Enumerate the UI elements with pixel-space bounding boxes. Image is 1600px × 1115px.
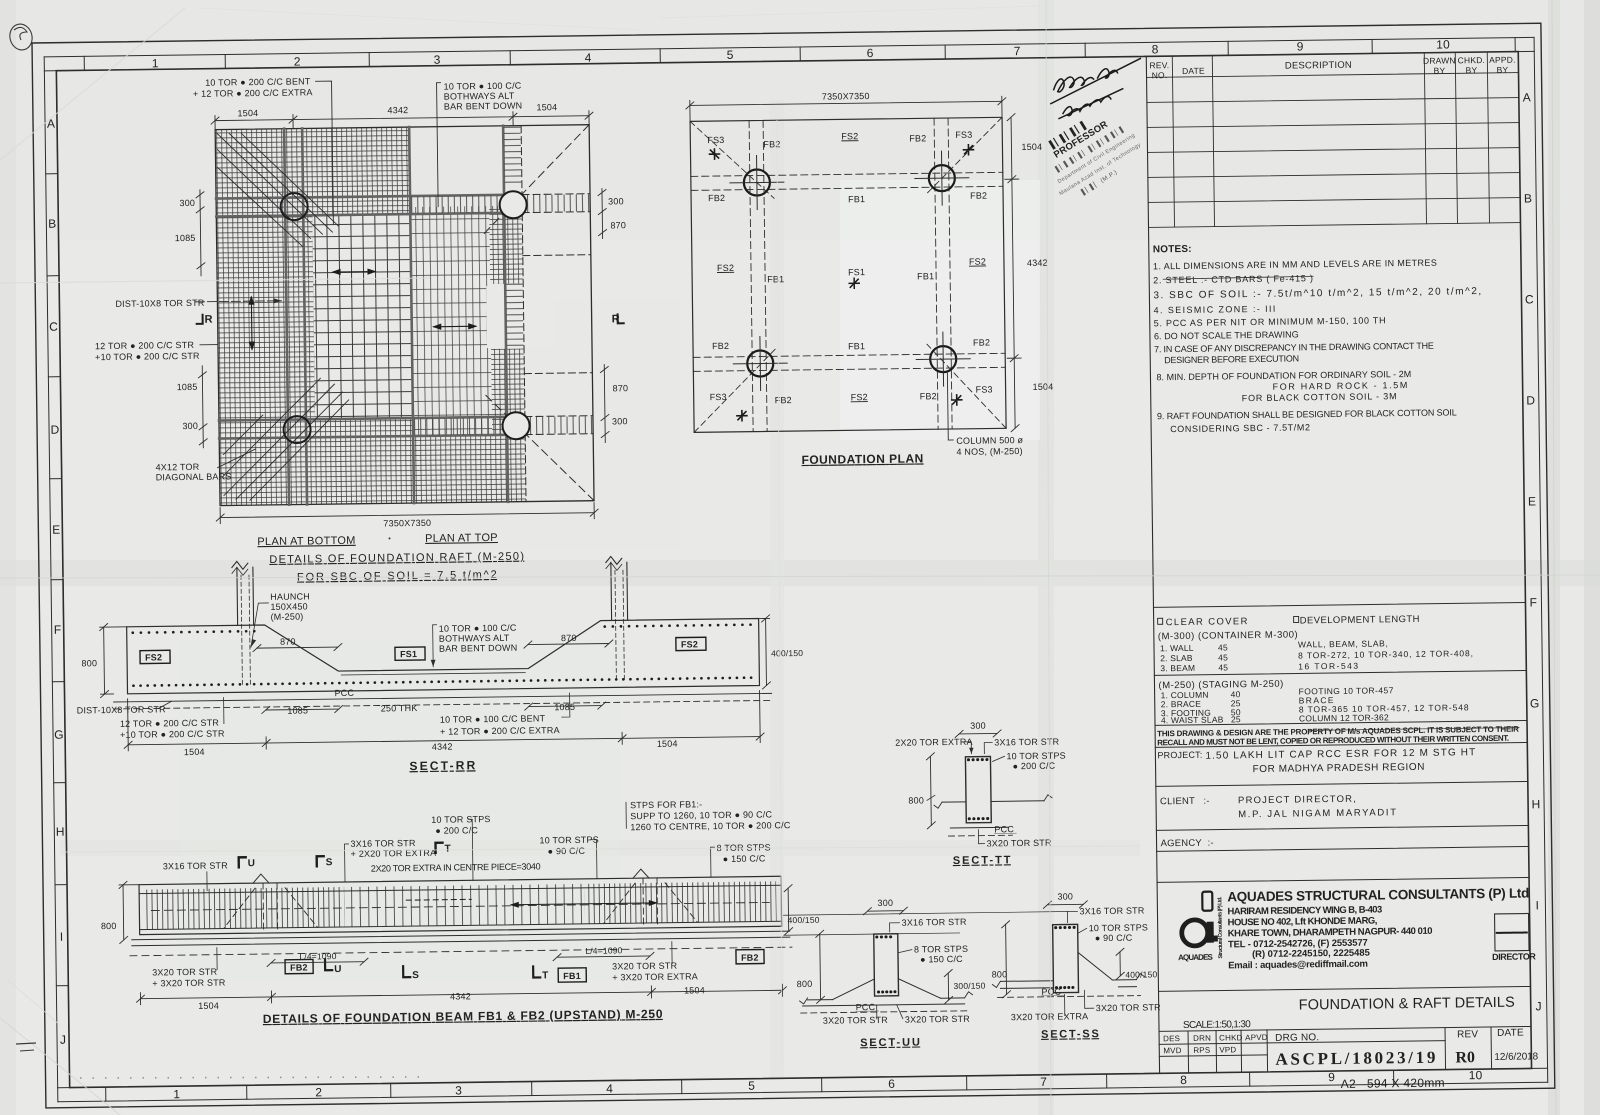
svg-text:4 NOS, (M-250): 4 NOS, (M-250)	[956, 446, 1022, 457]
svg-text:10 TOR STPS: 10 TOR STPS	[1006, 751, 1066, 762]
svg-text:300/150: 300/150	[953, 981, 985, 991]
svg-text:3. BEAM: 3. BEAM	[1160, 663, 1195, 673]
svg-text:4342: 4342	[387, 105, 408, 115]
svg-text:150X450: 150X450	[270, 601, 308, 611]
svg-text:SCALE:1:50,1:30: SCALE:1:50,1:30	[1183, 1019, 1251, 1031]
svg-text:PCC: PCC	[856, 1002, 876, 1012]
svg-text:BY: BY	[1466, 65, 1478, 75]
svg-text:1085: 1085	[287, 705, 308, 715]
svg-text:FB1: FB1	[563, 971, 581, 981]
svg-text:10 TOR STPS: 10 TOR STPS	[431, 814, 491, 825]
svg-text:CLIENT :-: CLIENT :-	[1160, 796, 1210, 808]
svg-text:FS1: FS1	[848, 267, 865, 277]
svg-text:1260 TO CENTRE, 10 TOR ● 200: 1260 TO CENTRE, 10 TOR ● 200 C/C	[630, 820, 791, 832]
svg-text:3X20 TOR EXTRA: 3X20 TOR EXTRA	[1011, 1011, 1089, 1022]
svg-text:300: 300	[179, 198, 195, 208]
svg-text:FS2: FS2	[841, 131, 858, 141]
svg-text:CONSIDERING SBC - 7.5T/M2: CONSIDERING SBC - 7.5T/M2	[1170, 422, 1310, 434]
svg-text:E: E	[52, 523, 60, 537]
svg-text:FB2: FB2	[775, 395, 792, 405]
svg-text:SUPP TO 1260, 10 TOR ● 90 C/C: SUPP TO 1260, 10 TOR ● 90 C/C	[630, 809, 772, 821]
svg-text:7: 7	[1014, 44, 1021, 58]
svg-text:(M-300) (CONTAINER M-300): (M-300) (CONTAINER M-300)	[1158, 629, 1298, 642]
svg-text:FB2: FB2	[290, 962, 308, 972]
svg-text:10: 10	[1436, 37, 1450, 51]
svg-text:T: T	[445, 844, 451, 855]
svg-text:3X20 TOR STR: 3X20 TOR STR	[823, 1015, 889, 1026]
svg-text:3X16 TOR STR: 3X16 TOR STR	[1079, 906, 1145, 917]
svg-text:300: 300	[182, 421, 198, 431]
svg-text:Email : aquades@rediffmail.com: Email : aquades@rediffmail.com	[1228, 959, 1368, 972]
svg-text:25: 25	[1231, 714, 1241, 724]
svg-text:870: 870	[610, 220, 626, 230]
svg-text:10 TOR STPS: 10 TOR STPS	[539, 835, 599, 846]
svg-text:800: 800	[992, 969, 1008, 979]
svg-text:DRG NO.: DRG NO.	[1275, 1032, 1319, 1044]
svg-text:C: C	[1525, 292, 1534, 306]
svg-text:3X20 TOR STR: 3X20 TOR STR	[612, 961, 678, 972]
svg-text:FOUNDATION PLAN: FOUNDATION PLAN	[801, 451, 923, 467]
svg-text:+ 2X20 TOR EXTRA: + 2X20 TOR EXTRA	[351, 848, 437, 859]
svg-text:DEVELOPMENT LENGTH: DEVELOPMENT LENGTH	[1300, 614, 1420, 627]
svg-text:10 TOR ● 100 C/C BENT: 10 TOR ● 100 C/C BENT	[440, 713, 546, 724]
svg-text:FS1: FS1	[400, 649, 417, 659]
svg-text:9: 9	[1297, 39, 1304, 53]
svg-text:8: 8	[1180, 1073, 1187, 1087]
svg-text:DATE: DATE	[1497, 1028, 1524, 1039]
svg-text:APPD.: APPD.	[1489, 55, 1516, 65]
svg-text:7: 7	[1040, 1075, 1047, 1089]
svg-text:250 THK: 250 THK	[381, 703, 418, 713]
svg-text:RPS: RPS	[1193, 1046, 1210, 1055]
svg-text:I: I	[1536, 898, 1540, 912]
svg-text:SECT-UU: SECT-UU	[860, 1036, 920, 1049]
svg-text:FB2: FB2	[970, 191, 987, 201]
svg-text:FS2: FS2	[851, 392, 868, 402]
svg-text:PCC: PCC	[994, 824, 1014, 834]
svg-text:FS3: FS3	[955, 130, 972, 140]
svg-text:BAR BENT DOWN: BAR BENT DOWN	[444, 101, 523, 112]
svg-text:PCC: PCC	[1041, 987, 1061, 997]
svg-text:3X16 TOR STR: 3X16 TOR STR	[994, 737, 1060, 748]
svg-text:DIST-10X8 TOR STR: DIST-10X8 TOR STR	[77, 704, 167, 715]
svg-text:U: U	[334, 964, 342, 975]
svg-text:1. WALL: 1. WALL	[1160, 643, 1194, 653]
svg-text:R0: R0	[1455, 1049, 1475, 1066]
svg-text:REV: REV	[1457, 1029, 1478, 1040]
svg-text:1504: 1504	[684, 985, 705, 995]
svg-text:FS2: FS2	[717, 263, 734, 273]
svg-text:FOUNDATION & RAFT DETAILS: FOUNDATION & RAFT DETAILS	[1299, 995, 1515, 1014]
svg-text:E: E	[1528, 494, 1536, 508]
svg-text:B: B	[1524, 191, 1532, 205]
svg-text:S: S	[326, 857, 333, 868]
svg-text:10 TOR STPS: 10 TOR STPS	[1089, 922, 1149, 933]
svg-text:3X16 TOR STR: 3X16 TOR STR	[902, 917, 968, 928]
svg-text:G: G	[1530, 696, 1540, 710]
svg-text:● 90 C/C: ● 90 C/C	[548, 846, 586, 856]
svg-text:CHKD.: CHKD.	[1458, 55, 1486, 65]
svg-text:16 TOR-543: 16 TOR-543	[1298, 661, 1358, 672]
svg-text:Structural Consultants (P) Ltd: Structural Consultants (P) Ltd.	[1217, 896, 1224, 959]
svg-text:APVD: APVD	[1245, 1033, 1268, 1042]
svg-text:FOR BLACK COTTON SOIL - 3M: FOR BLACK COTTON SOIL - 3M	[1242, 391, 1397, 403]
svg-text:J: J	[60, 1033, 66, 1047]
svg-text:10 TOR ● 200 C/C BENT: 10 TOR ● 200 C/C BENT	[205, 76, 311, 87]
svg-text:FB1: FB1	[917, 271, 934, 281]
svg-text:+ 3X20 TOR STR: + 3X20 TOR STR	[152, 978, 226, 989]
svg-text:L/4=1090: L/4=1090	[299, 951, 336, 961]
svg-text:4X12 TOR: 4X12 TOR	[156, 462, 200, 473]
svg-text:PLAN AT BOTTOM: PLAN AT BOTTOM	[257, 535, 355, 548]
svg-text:STPS FOR FB1:-: STPS FOR FB1:-	[630, 799, 702, 810]
svg-text:45: 45	[1218, 652, 1228, 662]
svg-text:2. SLAB: 2. SLAB	[1160, 653, 1193, 663]
svg-text:1085: 1085	[177, 382, 198, 392]
svg-text:● 150 C/C: ● 150 C/C	[920, 954, 963, 965]
svg-text:+ 12 TOR ● 200 C/C EXTRA: + 12 TOR ● 200 C/C EXTRA	[440, 725, 560, 737]
svg-text:9: 9	[1328, 1070, 1335, 1084]
svg-text:DRAWN: DRAWN	[1423, 55, 1456, 65]
svg-text:+ 12 TOR ● 200 C/C EXTRA: + 12 TOR ● 200 C/C EXTRA	[193, 87, 313, 99]
svg-text:COLUMN 500 ø: COLUMN 500 ø	[956, 435, 1023, 446]
svg-text:R: R	[205, 314, 213, 326]
svg-text:MVD: MVD	[1163, 1046, 1182, 1055]
svg-text:FB1: FB1	[767, 274, 784, 284]
svg-text:1085: 1085	[175, 233, 196, 243]
svg-text:8: 8	[1152, 42, 1159, 56]
svg-text:400/150: 400/150	[771, 648, 803, 658]
svg-text:3X20 TOR STR: 3X20 TOR STR	[905, 1014, 971, 1025]
svg-text:6: 6	[888, 1077, 895, 1091]
svg-text:2: 2	[315, 1085, 322, 1099]
svg-text:5: 5	[727, 48, 734, 62]
svg-text:● 90 C/C: ● 90 C/C	[1095, 933, 1133, 943]
svg-text:BY: BY	[1497, 65, 1509, 75]
svg-text:S: S	[412, 970, 419, 981]
svg-text:400/150: 400/150	[1125, 969, 1157, 979]
svg-text:FS3: FS3	[710, 392, 727, 402]
svg-text:870: 870	[280, 637, 296, 647]
svg-text:DIST-10X8 TOR STR: DIST-10X8 TOR STR	[115, 298, 205, 309]
svg-text:U: U	[248, 858, 256, 869]
svg-text:FS2: FS2	[145, 652, 162, 662]
svg-text:1: 1	[152, 56, 159, 70]
svg-text:F: F	[54, 623, 62, 637]
svg-text:FS3: FS3	[976, 384, 993, 394]
svg-text:1504: 1504	[1033, 382, 1054, 392]
svg-text:10: 10	[1469, 1068, 1483, 1082]
svg-text:6: 6	[867, 46, 874, 60]
svg-text:1504: 1504	[184, 747, 205, 757]
svg-text:800: 800	[797, 979, 813, 989]
svg-text:1504: 1504	[237, 108, 258, 118]
svg-text:PROJECT DIRECTOR,: PROJECT DIRECTOR,	[1238, 794, 1356, 807]
svg-text:DES: DES	[1163, 1034, 1180, 1043]
svg-text:FB2: FB2	[973, 337, 990, 347]
svg-text:12 TOR ● 200 C/C STR: 12 TOR ● 200 C/C STR	[120, 718, 220, 729]
svg-text:800: 800	[101, 921, 117, 931]
svg-text:NOTES:: NOTES:	[1153, 244, 1192, 256]
svg-text:1: 1	[173, 1087, 180, 1101]
svg-text:D: D	[50, 423, 59, 437]
svg-text:FS3: FS3	[707, 135, 724, 145]
svg-text:PROJECT:: PROJECT:	[1157, 750, 1202, 761]
svg-text:5: 5	[748, 1079, 755, 1093]
svg-text:G: G	[54, 728, 64, 742]
svg-text:4. WAIST SLAB: 4. WAIST SLAB	[1161, 714, 1224, 725]
svg-text:4342: 4342	[1027, 258, 1048, 268]
svg-text:A: A	[1523, 90, 1531, 104]
svg-text:FS2: FS2	[681, 639, 698, 649]
svg-text:400/150: 400/150	[787, 915, 819, 925]
svg-text:AGENCY :-: AGENCY :-	[1161, 838, 1214, 850]
svg-text:1504: 1504	[657, 739, 678, 749]
svg-text:B: B	[48, 217, 56, 231]
svg-text:1504: 1504	[536, 102, 557, 112]
svg-text:800: 800	[81, 658, 97, 668]
svg-text:4: 4	[585, 51, 592, 65]
svg-text:J: J	[1535, 999, 1541, 1013]
svg-text:1504: 1504	[198, 1001, 219, 1011]
svg-text:4342: 4342	[450, 991, 471, 1001]
svg-text:VPD: VPD	[1219, 1045, 1236, 1054]
svg-text:COLUMN 12 TOR-362: COLUMN 12 TOR-362	[1299, 712, 1389, 723]
svg-text:A2 594 X 420mm: A2 594 X 420mm	[1341, 1076, 1445, 1091]
svg-text:870: 870	[613, 383, 629, 393]
svg-text:FB1: FB1	[848, 341, 865, 351]
svg-text:1504: 1504	[1021, 142, 1042, 152]
svg-text:4342: 4342	[432, 742, 453, 752]
svg-text:3: 3	[434, 53, 441, 67]
svg-text:4. SEISMIC ZONE :- III: 4. SEISMIC ZONE :- III	[1154, 304, 1276, 316]
svg-text:3X20 TOR STR: 3X20 TOR STR	[152, 967, 218, 978]
svg-text:+10 TOR ● 200 C/C STR: +10 TOR ● 200 C/C STR	[120, 729, 225, 740]
svg-text:FB1: FB1	[848, 194, 865, 204]
svg-text:800: 800	[908, 795, 924, 805]
svg-text:FB2: FB2	[708, 193, 725, 203]
svg-text:DESCRIPTION: DESCRIPTION	[1285, 60, 1352, 72]
svg-text:870: 870	[561, 633, 577, 643]
svg-text:C: C	[49, 320, 58, 334]
svg-text:7350X7350: 7350X7350	[822, 91, 870, 102]
svg-text:45: 45	[1218, 662, 1228, 672]
svg-text:3X16 TOR STR: 3X16 TOR STR	[163, 861, 229, 872]
svg-text:300: 300	[970, 721, 986, 731]
svg-text:+ 3X20 TOR EXTRA: + 3X20 TOR EXTRA	[612, 971, 698, 982]
svg-text:PCC: PCC	[334, 688, 354, 698]
svg-text:D: D	[1526, 393, 1535, 407]
svg-text:300: 300	[612, 416, 628, 426]
svg-text:REV.: REV.	[1149, 60, 1169, 70]
svg-text:AQUADES: AQUADES	[1178, 953, 1214, 962]
svg-text:FB2: FB2	[763, 139, 780, 149]
svg-text:H: H	[1532, 797, 1541, 811]
svg-text:7350X7350: 7350X7350	[383, 518, 431, 529]
svg-text:● 150 C/C: ● 150 C/C	[723, 853, 766, 864]
svg-text:FB2: FB2	[909, 133, 926, 143]
svg-text:BAR BENT DOWN: BAR BENT DOWN	[439, 643, 518, 654]
svg-text:HAUNCH: HAUNCH	[270, 591, 310, 602]
svg-text:3X20 TOR STR: 3X20 TOR STR	[1096, 1002, 1162, 1013]
svg-text:+10 TOR ● 200 C/C STR: +10 TOR ● 200 C/C STR	[95, 351, 200, 362]
svg-text:H: H	[56, 825, 65, 839]
svg-text:SECT-RR: SECT-RR	[409, 758, 475, 773]
svg-text:DRN: DRN	[1193, 1034, 1211, 1043]
svg-text:300: 300	[608, 196, 624, 206]
svg-text:12/6/2018: 12/6/2018	[1494, 1051, 1538, 1063]
svg-text:I: I	[60, 930, 64, 944]
svg-text:PLAN AT TOP: PLAN AT TOP	[425, 532, 498, 545]
svg-text:8 TOR STPS: 8 TOR STPS	[914, 944, 968, 955]
svg-text:300: 300	[1057, 891, 1073, 901]
svg-text:DIRECTOR: DIRECTOR	[1492, 951, 1536, 962]
svg-text:FB2: FB2	[920, 391, 937, 401]
svg-text:DATE: DATE	[1182, 66, 1205, 76]
svg-text:3: 3	[455, 1083, 462, 1097]
svg-text:FS2: FS2	[969, 257, 986, 267]
svg-text:45: 45	[1218, 642, 1228, 652]
svg-text:DESIGNER BEFORE EXECUTION: DESIGNER BEFORE EXECUTION	[1164, 353, 1299, 365]
svg-text:4: 4	[606, 1081, 613, 1095]
svg-text:FOR MADHYA PRADESH REGION: FOR MADHYA PRADESH REGION	[1253, 762, 1425, 775]
svg-text:1085: 1085	[554, 702, 575, 712]
svg-text:2: 2	[294, 54, 301, 68]
svg-text:6. DO NOT SCALE THE DRAWING: 6. DO NOT SCALE THE DRAWING	[1154, 329, 1299, 341]
svg-text:300: 300	[877, 898, 893, 908]
svg-text:CHKD: CHKD	[1219, 1033, 1243, 1042]
svg-text:CLEAR COVER: CLEAR COVER	[1166, 616, 1248, 628]
svg-text:T: T	[542, 970, 548, 981]
svg-text:NO.: NO.	[1152, 70, 1168, 80]
svg-text:ASCPL/18023/19: ASCPL/18023/19	[1275, 1048, 1435, 1069]
svg-text:L/4=1090: L/4=1090	[585, 945, 622, 955]
svg-text:FOR HARD ROCK - 1.5M: FOR HARD ROCK - 1.5M	[1273, 380, 1408, 392]
svg-text:(M-250): (M-250)	[270, 611, 303, 621]
svg-text:F: F	[1530, 595, 1538, 609]
svg-text:BY: BY	[1434, 66, 1446, 76]
svg-text:DIAGONAL BARS: DIAGONAL BARS	[156, 471, 232, 482]
svg-text:FB2: FB2	[741, 953, 759, 963]
svg-text:12 TOR ● 200 C/C STR: 12 TOR ● 200 C/C STR	[95, 340, 195, 351]
svg-text:FB2: FB2	[712, 341, 729, 351]
svg-text:WALL, BEAM, SLAB,: WALL, BEAM, SLAB,	[1298, 638, 1388, 649]
